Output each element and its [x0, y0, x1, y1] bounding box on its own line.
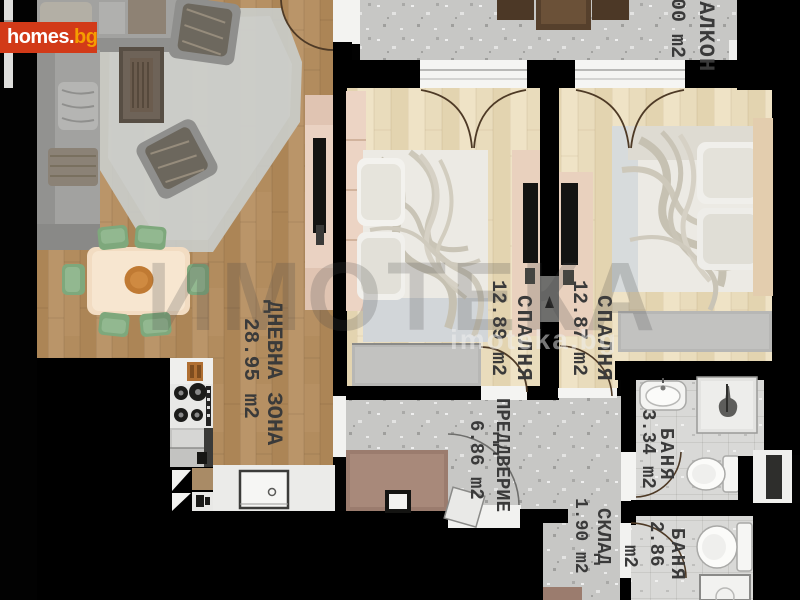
svg-text:imoteka.bg: imoteka.bg: [450, 324, 618, 355]
svg-text:1.90 m2: 1.90 m2: [570, 498, 590, 574]
svg-text:5.00 m2: 5.00 m2: [665, 0, 688, 58]
svg-text:БАЛКОН: БАЛКОН: [693, 0, 718, 72]
svg-text:6.86 m2: 6.86 m2: [465, 420, 487, 500]
svg-text:3.34 m2: 3.34 m2: [637, 409, 659, 489]
svg-text:m2: m2: [619, 545, 641, 568]
svg-text:БАНЯ: БАНЯ: [666, 528, 688, 582]
svg-text:2.86: 2.86: [645, 521, 667, 567]
svg-text:ПРЕДДВЕРИЕ: ПРЕДДВЕРИЕ: [491, 398, 513, 512]
svg-text:СКЛАД: СКЛАД: [592, 508, 614, 566]
